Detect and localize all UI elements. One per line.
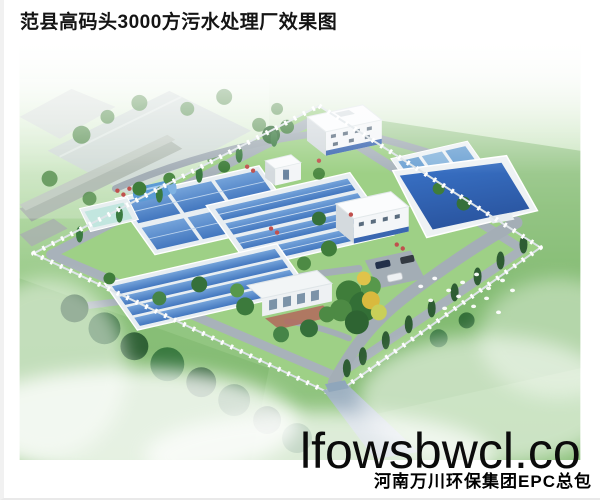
autumn-tree bbox=[371, 304, 387, 320]
page: 范县高码头3000方污水处理厂效果图 bbox=[0, 0, 600, 500]
top-haze bbox=[20, 39, 581, 174]
footer-company: 河南万川环保集团EPC总包 bbox=[374, 467, 592, 492]
page-title: 范县高码头3000方污水处理厂效果图 bbox=[20, 7, 337, 34]
autumn-tree bbox=[357, 271, 371, 285]
rendering-photo bbox=[19, 39, 581, 460]
plant-aerial-scene bbox=[19, 39, 581, 460]
